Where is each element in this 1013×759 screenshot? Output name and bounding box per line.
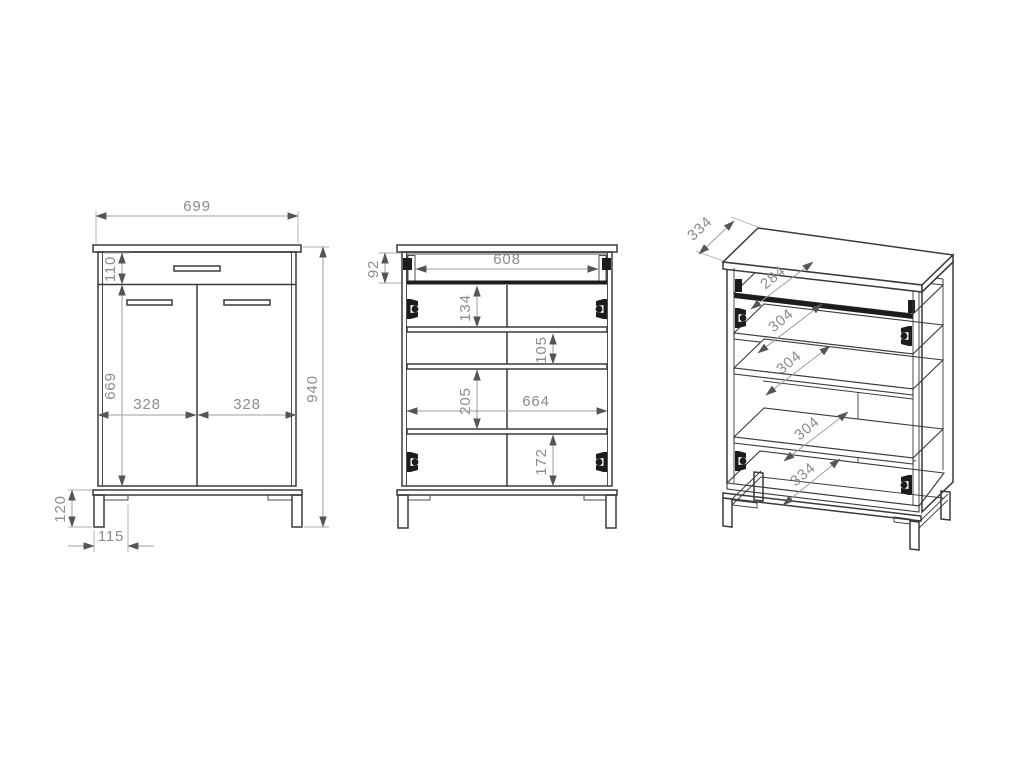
dim-right-door-width: 328 <box>233 396 260 413</box>
dim-overall-depth: 334 <box>684 213 716 244</box>
base-rail <box>397 490 617 495</box>
hinge-icon <box>735 451 746 471</box>
drawer-slide-icon <box>403 258 412 270</box>
top-panel <box>93 245 301 252</box>
drawer-slide-icon <box>602 258 611 270</box>
right-door-handle <box>224 300 270 305</box>
front-view: 699 940 110 669 328 328 120 115 <box>52 198 329 552</box>
right-leg <box>606 495 616 528</box>
dim-compartment-4-height: 172 <box>533 448 550 475</box>
front-left-leg <box>723 498 732 527</box>
dim-leg-height: 120 <box>52 495 69 522</box>
shelf <box>407 429 607 434</box>
base-rail <box>93 490 302 495</box>
front-base-frame <box>93 490 302 527</box>
drawer-handle <box>174 266 220 271</box>
dim-leg-foot-width: 115 <box>98 528 124 545</box>
left-leg <box>94 495 104 527</box>
left-door-handle <box>127 300 172 305</box>
dim-left-door-width: 328 <box>133 396 160 413</box>
dim-overall-height: 940 <box>304 375 321 402</box>
dim-compartment-1-height: 134 <box>457 294 474 321</box>
open-base-frame <box>397 490 617 528</box>
dim-drawer-front-height: 110 <box>102 256 119 282</box>
dim-drawer-box-height: 92 <box>365 260 382 278</box>
perspective-view: 334 284 304 304 304 334 <box>684 213 953 550</box>
left-leg <box>398 495 408 528</box>
technical-drawing-canvas: 699 940 110 669 328 328 120 115 <box>0 0 1013 759</box>
drawer-slide-icon <box>735 279 742 292</box>
hinge-icon <box>901 326 912 346</box>
dim-compartment-2-height: 105 <box>533 336 550 363</box>
hinge-icon <box>407 452 418 472</box>
drawer-slide-icon <box>908 300 915 313</box>
hinge-icon <box>596 452 607 472</box>
dim-door-height: 669 <box>102 372 119 399</box>
hinge-icon <box>735 308 746 328</box>
dim-drawer-box-width: 608 <box>493 251 520 268</box>
furniture-dimension-drawing: 699 940 110 669 328 328 120 115 <box>0 0 1013 759</box>
front-cabinet-outline <box>93 245 301 486</box>
right-leg <box>292 495 302 527</box>
open-cabinet-outline <box>397 245 617 486</box>
hinge-icon <box>596 299 607 319</box>
drawer-bottom-panel <box>407 281 607 285</box>
front-right-leg <box>910 521 919 550</box>
hinge-icon <box>407 299 418 319</box>
shelf <box>407 327 607 332</box>
shelf <box>407 364 607 369</box>
open-front-view: 92 608 134 105 205 664 172 <box>365 245 617 528</box>
hinge-icon <box>901 475 912 495</box>
dim-interior-width: 664 <box>522 393 549 410</box>
dim-overall-width: 699 <box>183 198 210 215</box>
